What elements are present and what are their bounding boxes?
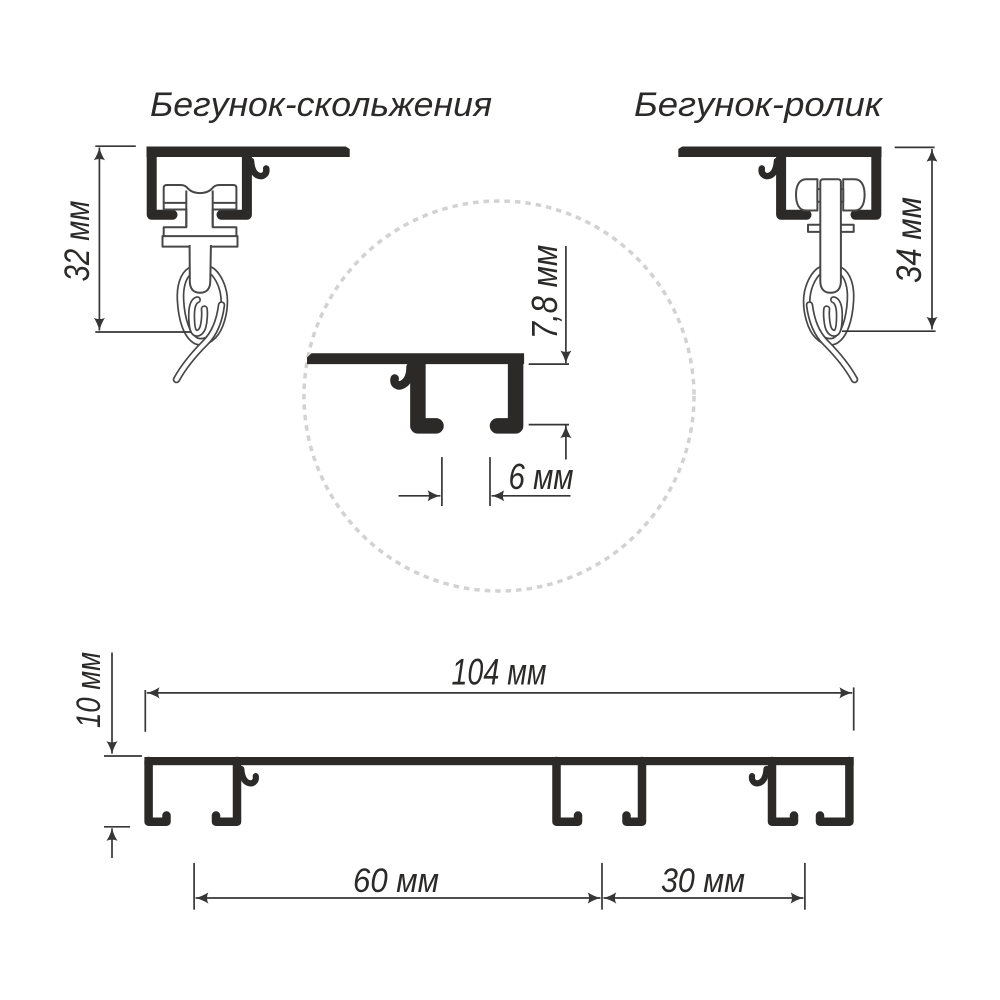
svg-text:10 мм: 10 мм [70,652,108,728]
svg-text:7,8 мм: 7,8 мм [524,245,565,340]
svg-text:104 мм: 104 мм [452,652,547,693]
svg-text:Бегунок-ролик: Бегунок-ролик [634,86,884,124]
svg-text:6 мм: 6 мм [509,456,574,497]
svg-text:30 мм: 30 мм [661,862,745,900]
svg-text:34 мм: 34 мм [889,197,929,283]
svg-text:32 мм: 32 мм [57,201,97,282]
svg-text:Бегунок-скольжения: Бегунок-скольжения [150,86,492,124]
svg-text:60 мм: 60 мм [353,862,439,900]
